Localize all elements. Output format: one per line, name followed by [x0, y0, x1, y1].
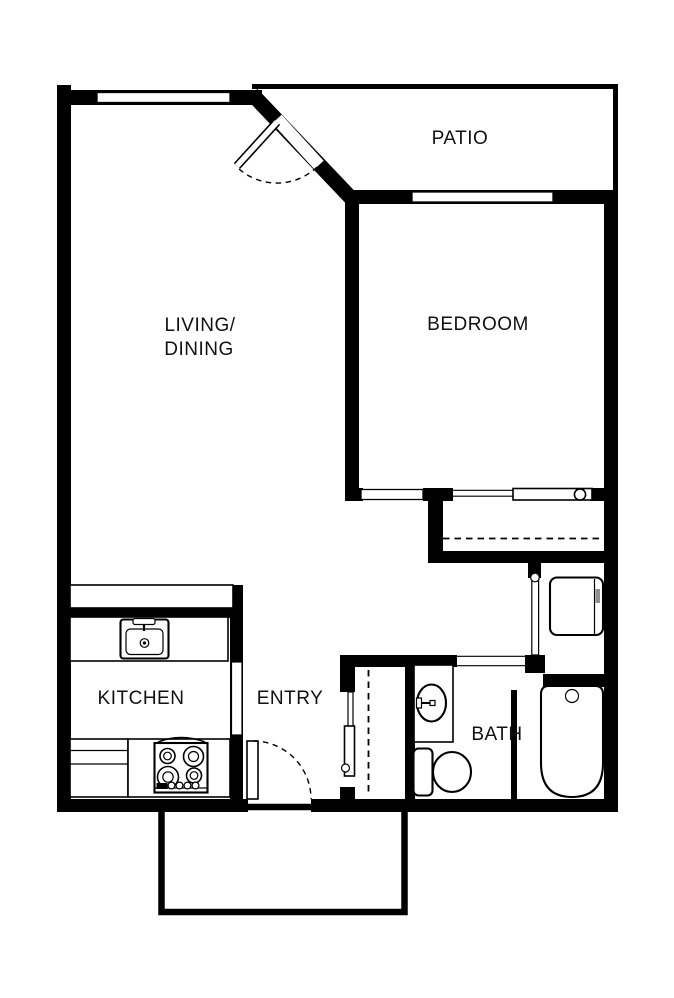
kitchen-label: KITCHEN [98, 688, 185, 709]
toilet-bowl [433, 752, 471, 792]
living-dining-label-line2: DINING [164, 339, 234, 360]
wall-bedroom-bottom-a [345, 488, 363, 501]
burner-large-2-inner [163, 772, 173, 782]
wall-left [57, 85, 71, 812]
sliding-door-handle [574, 489, 585, 500]
bath-label: BATH [471, 724, 522, 745]
base-cabinet [70, 739, 128, 797]
window-bedroom-bottom [361, 490, 423, 500]
burner-small-1-inner [164, 752, 172, 760]
wall-entry-closet-stub-lower [340, 787, 355, 799]
wall-bedroom-bottom-b [423, 488, 453, 501]
kitchen-sink-drain-dot [143, 641, 146, 644]
floor-plan: PATIO BEDROOM LIVING/ DINING KITCHEN ENT… [0, 0, 674, 998]
bedroom-label: BEDROOM [427, 314, 529, 335]
entry-door-leaf [247, 741, 258, 799]
wall-bedroom-left [345, 190, 359, 500]
entry-label: ENTRY [257, 688, 324, 709]
vanity-drain [430, 701, 435, 706]
floor-plan-page: PATIO BEDROOM LIVING/ DINING KITCHEN ENT… [0, 0, 674, 998]
kitchen-divider-recess [232, 662, 243, 735]
burner-small-2-inner [190, 772, 198, 780]
range-knob-4 [192, 782, 199, 789]
living-dining-label-line1: LIVING/ [164, 315, 235, 336]
window-bedroom-top [412, 192, 553, 202]
burner-large-1-inner [189, 752, 199, 762]
vanity-faucet [417, 698, 422, 708]
wall-hall-corner [525, 655, 545, 673]
patio-wall-top [252, 84, 618, 89]
wall-entry-closet-stub-upper [340, 667, 355, 692]
utility-door-leaf [532, 581, 539, 655]
pass-through-counter [70, 585, 233, 608]
patio-label: PATIO [432, 128, 489, 149]
range-knob-3 [184, 782, 191, 789]
entry-closet-door-handle [342, 764, 350, 772]
range-knob-2 [176, 782, 183, 789]
utility-door-knob [531, 573, 540, 582]
range-control-panel [157, 783, 168, 789]
wall-bedroom-closet-bottom [428, 551, 607, 563]
wall-bedroom-bottom-c [590, 488, 618, 501]
window-living [97, 93, 230, 103]
patio-wall-right [613, 84, 618, 194]
bathtub-drain [566, 690, 579, 703]
kitchen-faucet [133, 619, 155, 625]
toilet-tank [414, 749, 433, 796]
water-heater-handle [596, 589, 601, 603]
range-knob-1 [168, 782, 175, 789]
